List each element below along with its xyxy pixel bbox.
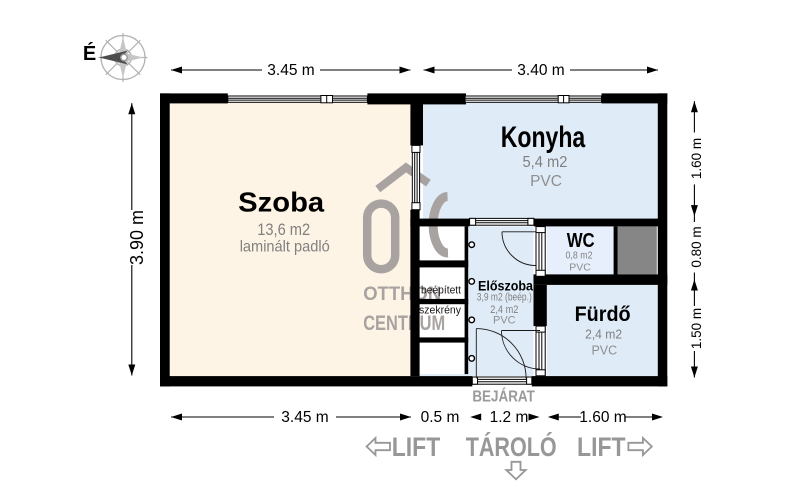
svg-text:PVC: PVC: [591, 344, 617, 358]
svg-text:TÁROLÓ: TÁROLÓ: [466, 431, 557, 462]
svg-text:1.2 m: 1.2 m: [490, 409, 529, 426]
svg-text:0.5 m: 0.5 m: [421, 409, 460, 426]
svg-text:3.45 m: 3.45 m: [281, 409, 328, 426]
svg-text:13,6 m2: 13,6 m2: [257, 220, 310, 239]
svg-text:LIFT: LIFT: [392, 432, 441, 462]
svg-text:BEJÁRAT: BEJÁRAT: [472, 387, 535, 406]
svg-text:szekrény: szekrény: [419, 305, 461, 317]
svg-text:É: É: [83, 42, 96, 65]
svg-text:laminált padló: laminált padló: [240, 239, 330, 256]
svg-text:1.50 m: 1.50 m: [689, 308, 704, 349]
svg-text:0.80 m: 0.80 m: [689, 226, 704, 267]
svg-text:3.90 m: 3.90 m: [127, 210, 147, 265]
svg-text:0,8 m2: 0,8 m2: [566, 250, 593, 262]
svg-text:3.40 m: 3.40 m: [517, 62, 564, 79]
svg-text:1.60 m: 1.60 m: [689, 138, 704, 179]
svg-text:3.45 m: 3.45 m: [267, 62, 314, 79]
svg-text:PVC: PVC: [569, 262, 591, 274]
svg-text:3,9 m2 (beép.): 3,9 m2 (beép.): [477, 292, 532, 304]
svg-text:5,4 m2: 5,4 m2: [523, 154, 568, 171]
svg-text:Szoba: Szoba: [238, 187, 324, 218]
svg-text:Konyha: Konyha: [501, 121, 586, 154]
svg-text:2,4 m2: 2,4 m2: [585, 326, 622, 341]
svg-text:LIFT: LIFT: [577, 432, 626, 462]
svg-text:Fürdő: Fürdő: [575, 303, 631, 326]
svg-text:PVC: PVC: [493, 315, 516, 327]
svg-text:1.60 m: 1.60 m: [579, 409, 626, 426]
svg-text:beépített: beépített: [421, 285, 461, 297]
svg-text:PVC: PVC: [530, 173, 562, 190]
